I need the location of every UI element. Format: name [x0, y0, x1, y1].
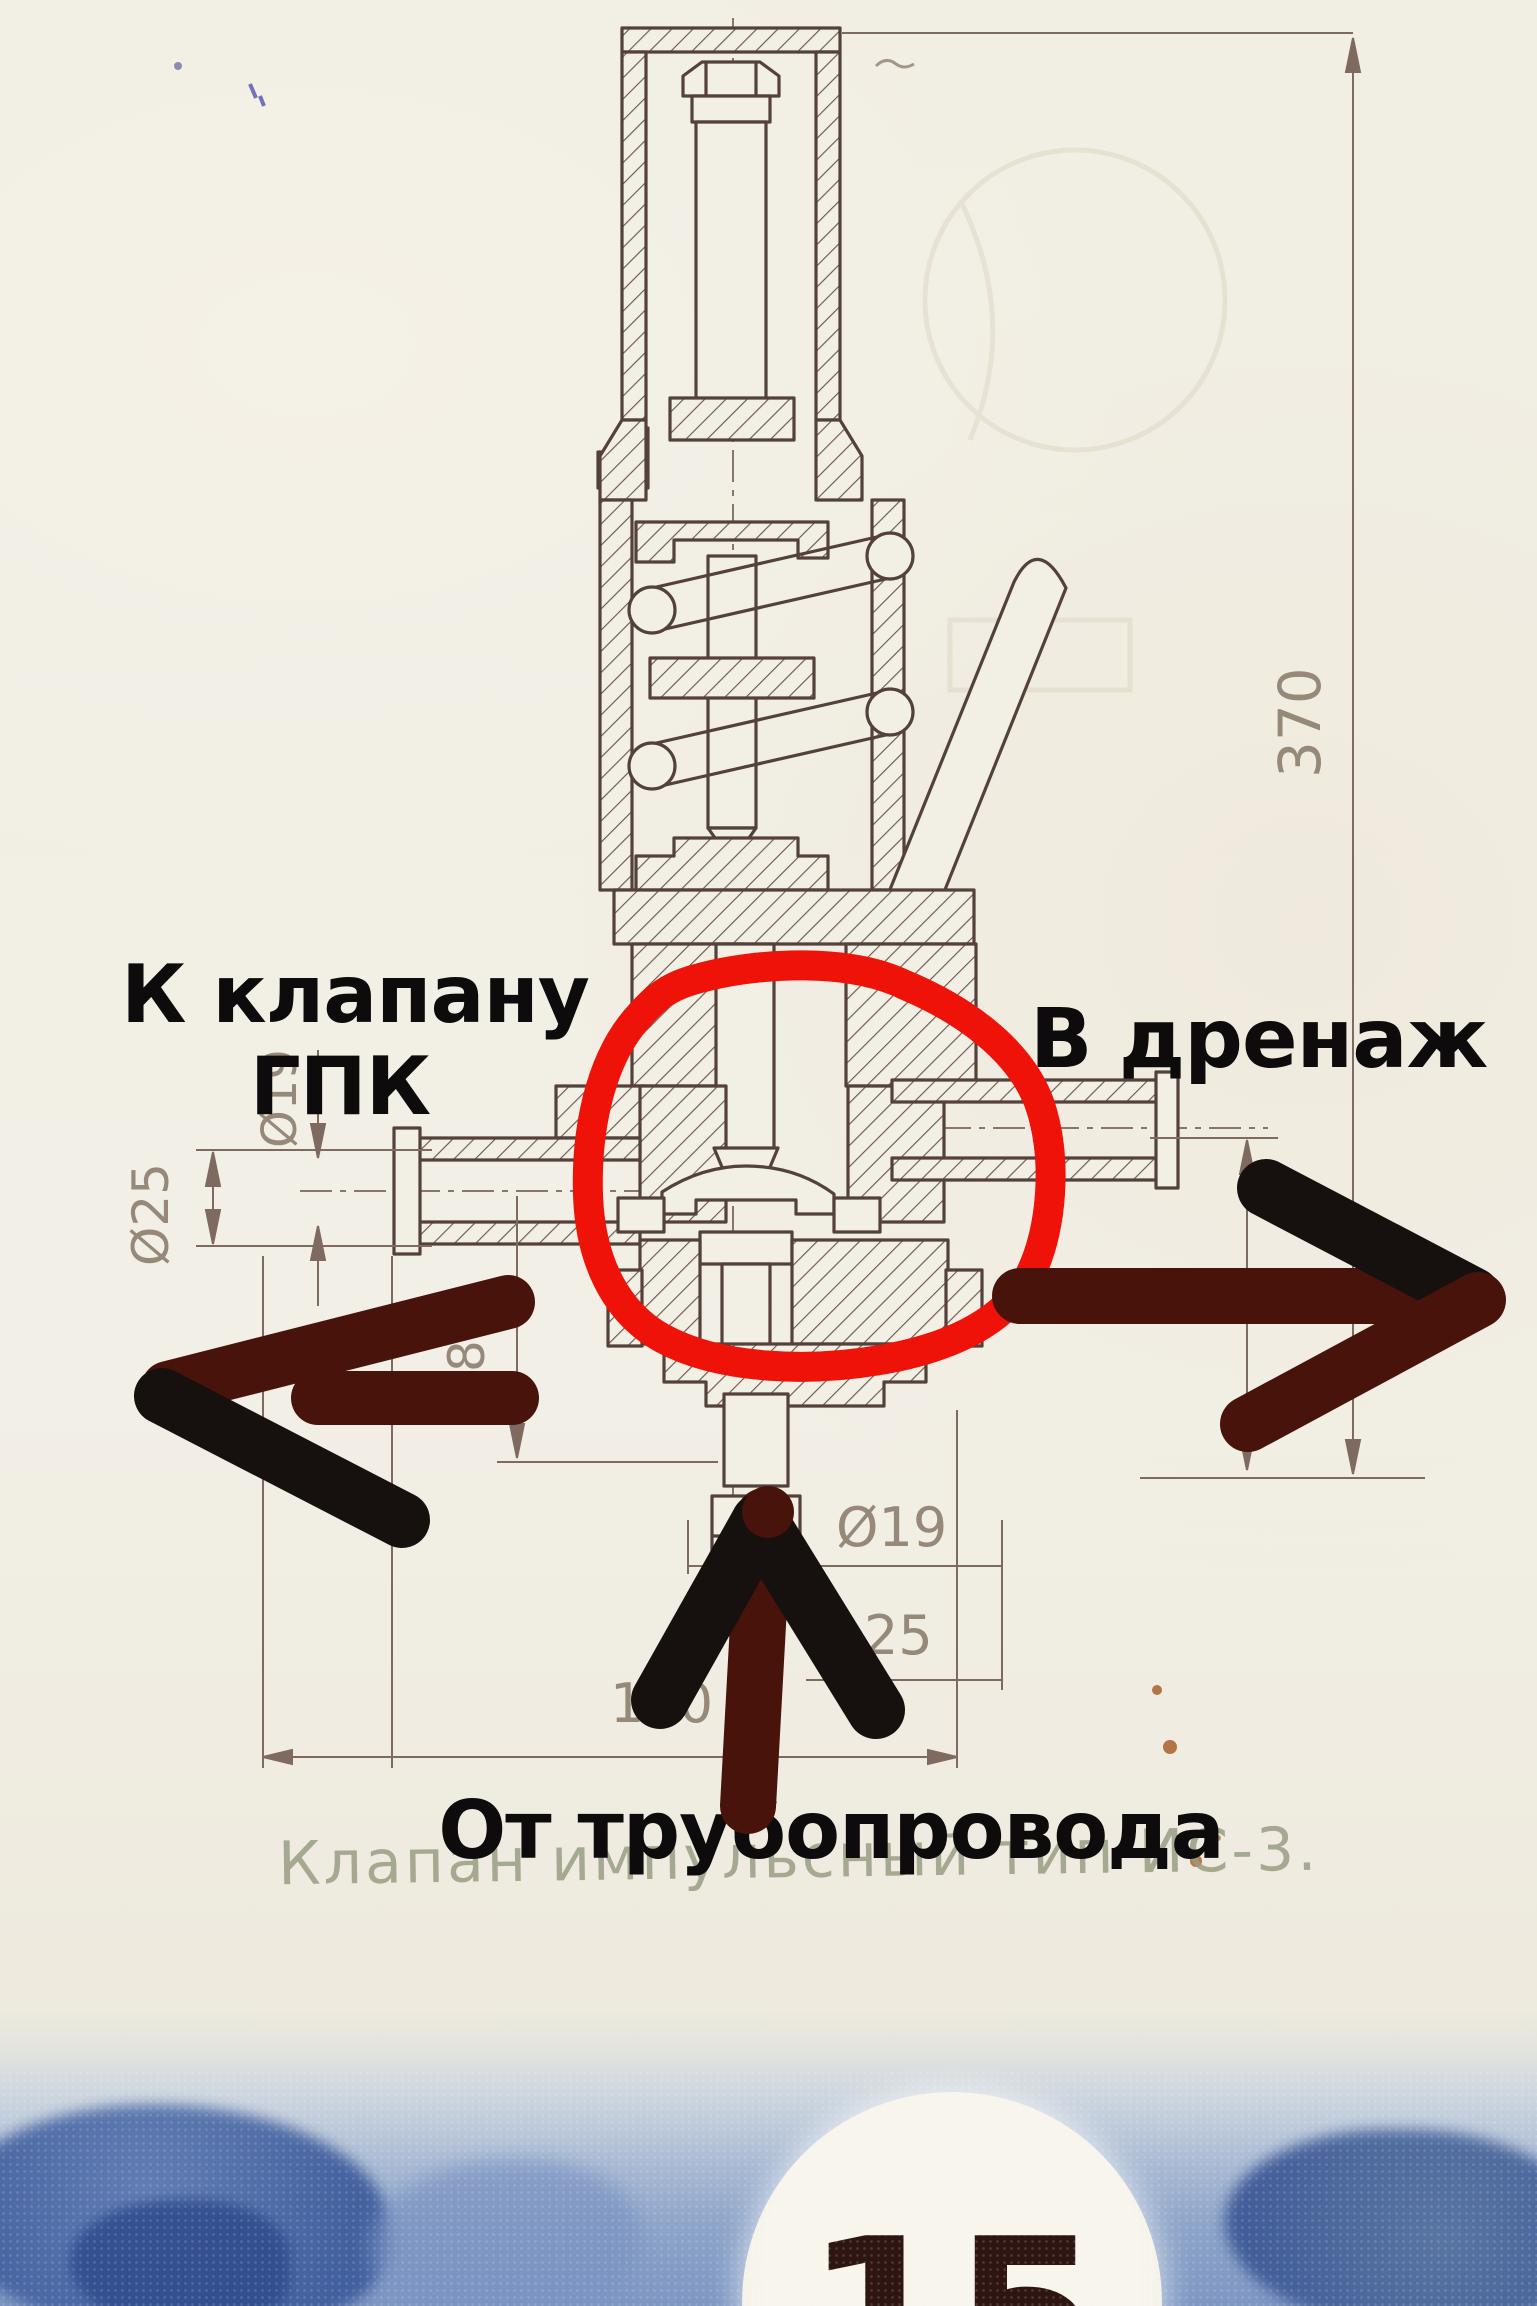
page-number: 15 — [804, 2210, 1099, 2306]
arrow-up — [660, 1486, 876, 1806]
scanned-page: 370 Ø19 Ø25 80 Ø19 25 170 Клапан импульс… — [0, 0, 1537, 2306]
arrow-left — [162, 1302, 512, 1520]
footer-photo-shadow-left — [70, 2200, 290, 2306]
red-circle-annotation — [588, 965, 1051, 1366]
footer-valve-photo-left — [0, 2105, 390, 2306]
page-number-circle: 15 — [742, 2092, 1162, 2306]
footer-photo-mid — [370, 2160, 640, 2306]
arrow-right — [1020, 1188, 1478, 1424]
hand-annotations — [0, 0, 1537, 2306]
page-footer-photo: 15 — [0, 2010, 1537, 2306]
footer-valve-photo-right — [1225, 2130, 1537, 2306]
